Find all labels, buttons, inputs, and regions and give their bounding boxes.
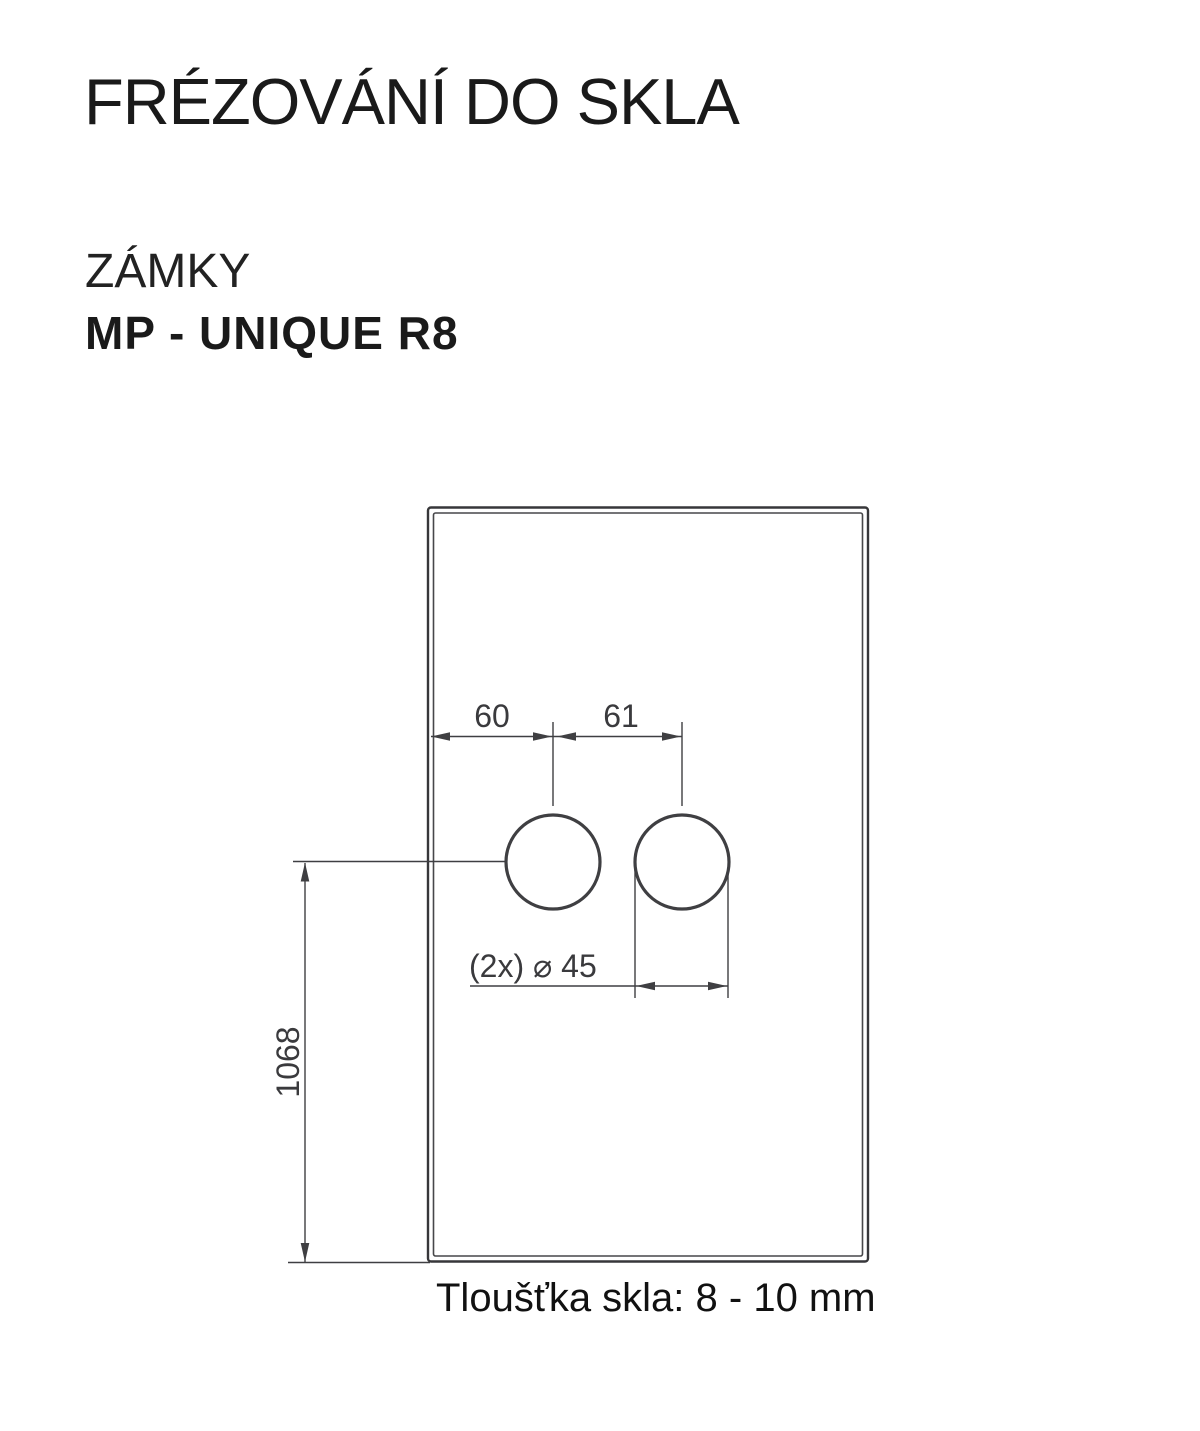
arrow-left-at-first-center bbox=[557, 732, 576, 741]
arrow-right-at-second-center bbox=[662, 732, 681, 741]
height-dim-label: 1068 bbox=[270, 1026, 306, 1097]
spacing-dim-label: 61 bbox=[603, 698, 639, 734]
arrow-right-at-hole-edge bbox=[708, 982, 727, 991]
glass-thickness-caption: Tloušťka skla: 8 - 10 mm bbox=[436, 1276, 876, 1320]
hole-left bbox=[506, 815, 600, 909]
arrow-left-at-hole-edge bbox=[636, 982, 655, 991]
hole-right bbox=[635, 815, 729, 909]
arrow-up-at-centerline bbox=[301, 863, 310, 882]
glass-panel bbox=[428, 508, 868, 1262]
arrow-down-at-bottom-edge bbox=[301, 1243, 310, 1262]
offset-dim-label: 60 bbox=[474, 698, 510, 734]
technical-drawing: 60 61 1068 (2x) ⌀ 45 bbox=[0, 0, 1200, 1431]
dim-height-group: 1068 bbox=[270, 863, 430, 1263]
glass-panel-outer-edge bbox=[428, 508, 868, 1262]
dim-diameter-group: (2x) ⌀ 45 bbox=[469, 870, 728, 998]
diameter-dim-label: (2x) ⌀ 45 bbox=[469, 948, 597, 984]
dim-top-group: 60 61 bbox=[431, 698, 682, 806]
glass-panel-inner-edge bbox=[434, 513, 863, 1256]
arrow-right-at-first-center bbox=[533, 732, 552, 741]
